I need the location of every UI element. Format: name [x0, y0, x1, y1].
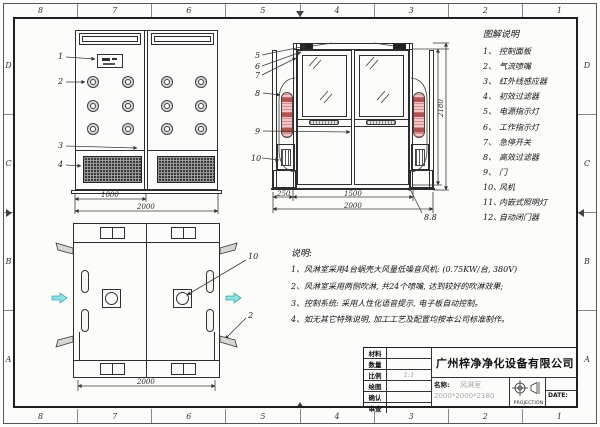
note-item: 4、如无其它特殊说明, 加工工艺及配置均按本公司标准制作。	[291, 314, 517, 331]
dim-label: 2000	[137, 378, 155, 386]
zone-cell: 7	[78, 4, 152, 17]
zone-cell: B	[4, 213, 13, 311]
legend-item-num: 10、	[483, 182, 499, 193]
legend-panel: 图解说明 1、控制面板 2、气流喷嘴 3、红外线感应器 4、初效过滤器 5、电源…	[483, 27, 575, 225]
leader-label: 4	[58, 160, 63, 169]
nozzle	[195, 123, 207, 135]
nozzle	[87, 76, 99, 88]
legend-item: 11、内嵌式照明灯	[483, 195, 575, 210]
notes-panel: 说明: 1、风淋室采用4台蜗壳大风量低噪音风机: (0.75KW/台, 380V…	[291, 246, 517, 331]
legend-item: 3、红外线感应器	[483, 74, 575, 89]
top-strip-inner	[154, 36, 211, 42]
hepa-filter-strip	[281, 92, 293, 138]
zone-cell: D	[4, 17, 13, 115]
title-row-label: 审查	[364, 403, 387, 413]
legend-item-label: 门	[499, 167, 507, 178]
zone-cell: 2	[449, 4, 523, 17]
legend-item: 12、自动闭门器	[483, 210, 575, 225]
zone-strip-bottom: 8 7 6 5 4 3 2 1	[4, 409, 596, 423]
product-name: 风淋室	[460, 380, 481, 390]
panel-divider	[147, 30, 148, 190]
note-item-num: 2、	[291, 281, 304, 292]
nozzle-plan	[81, 270, 89, 293]
title-block-table: 材料 数量 比例1:1 绘图 确认 审查	[364, 348, 431, 407]
nozzle-plan	[81, 309, 89, 332]
notes-title: 说明:	[291, 246, 517, 259]
note-item: 2、风淋室采用两侧吹淋, 共24个喷嘴, 达到较好的吹淋效果;	[291, 281, 517, 298]
control-panel	[97, 54, 123, 68]
legend-item-label: 红外线感应器	[499, 76, 547, 87]
zone-cell: 8	[4, 4, 78, 17]
title-row-label: 确认	[364, 392, 387, 402]
fan-louver	[415, 149, 425, 166]
zone-cell: C	[578, 115, 596, 213]
door-handle	[366, 120, 396, 125]
leader-label: 1	[58, 52, 63, 61]
leader-label: 10	[248, 252, 258, 261]
note-item-num: 4、	[291, 314, 304, 325]
cabinet-base	[71, 190, 222, 194]
fan-louver	[281, 149, 291, 166]
legend-item: 7、急停开关	[483, 135, 575, 150]
legend-item-label: 电源指示灯	[499, 106, 539, 117]
legend-item-label: 自动闭门器	[499, 212, 539, 223]
legend-item-num: 12、	[483, 212, 499, 223]
zone-cell: 3	[375, 4, 449, 17]
legend-item-num: 7、	[483, 137, 499, 148]
dim-label: 1500	[344, 190, 362, 198]
glass-pane	[302, 55, 347, 117]
title-row-label: 材料	[364, 348, 387, 358]
note-item-text: 控制系统: 采用人性化语音提示, 电子板自动控制。	[304, 298, 482, 309]
legend-item-num: 11、	[483, 197, 499, 208]
date-label: DATE:	[548, 392, 568, 399]
title-block-row: 比例1:1	[364, 370, 431, 381]
legend-item-num: 3、	[483, 76, 499, 87]
nozzle-plan	[206, 270, 214, 293]
base-plinth	[410, 170, 433, 188]
nozzle	[87, 123, 99, 135]
title-row-label: 数量	[364, 359, 387, 369]
air-grille	[157, 156, 215, 183]
legend-item-num: 9、	[483, 167, 499, 178]
title-block-bottom: 名称: 风淋室 2000*2000*2180 PROJECTION	[431, 378, 578, 407]
panel-divider	[144, 30, 145, 190]
legend-item-label: 气流喷嘴	[499, 61, 531, 72]
side-post	[429, 50, 434, 190]
projection-cell: PROJECTION	[510, 378, 546, 407]
title-row-value	[387, 348, 431, 358]
leader-label: 2	[58, 77, 63, 86]
legend-item: 8、高效过滤器	[483, 150, 575, 165]
leader-label: 8	[255, 89, 260, 98]
top-strip-inner	[82, 36, 138, 42]
door-closer-plan	[183, 227, 196, 239]
title-row-value	[387, 403, 431, 413]
zone-cell: 6	[152, 4, 226, 17]
name-label: 名称:	[434, 379, 450, 389]
note-item-text: 风淋室采用4台蜗壳大风量低噪音风机: (0.75KW/台, 380V)	[304, 264, 517, 275]
plan-wall-line	[79, 332, 80, 360]
legend-item-num: 2、	[483, 61, 499, 72]
zone-cell: 5	[226, 409, 300, 423]
zone-cell: 1	[523, 409, 596, 423]
dim-label: 250	[277, 190, 290, 198]
legend-item-num: 1、	[483, 46, 499, 57]
leader-label: 9	[255, 127, 260, 136]
legend-item-label: 风机	[499, 182, 515, 193]
nozzle	[122, 76, 134, 88]
nozzle	[195, 76, 207, 88]
leader-label: 7	[255, 71, 260, 80]
legend-item-label: 初效过滤器	[499, 91, 539, 102]
dim-label: 2000	[137, 203, 155, 211]
nozzle	[122, 123, 134, 135]
fan-circle	[105, 292, 118, 305]
scale-value: 1:1	[387, 370, 431, 380]
title-row-value	[387, 359, 431, 369]
door-closer	[393, 44, 406, 49]
title-block-row: 绘图	[364, 381, 431, 392]
zone-cell: A	[578, 311, 596, 408]
legend-item-label: 内嵌式照明灯	[499, 197, 547, 208]
zone-cell: D	[578, 17, 596, 115]
nozzle	[87, 100, 99, 112]
leader-label: 2	[248, 311, 253, 320]
leader-label: 10	[251, 154, 261, 163]
glass-pane	[359, 55, 404, 117]
dim-label: 2180	[437, 99, 445, 117]
leader-label: 3	[58, 141, 63, 150]
legend-item-num: 5、	[483, 106, 499, 117]
door-handle	[309, 120, 339, 125]
zone-cell: 2	[449, 409, 523, 423]
dim-label: 1000	[101, 191, 119, 199]
fan-circle	[176, 292, 189, 305]
zone-cell: C	[4, 115, 13, 213]
projection-label: PROJECTION	[511, 401, 546, 406]
zone-cell: 1	[523, 4, 596, 17]
panel-rail	[75, 150, 144, 151]
air-grille	[83, 156, 142, 183]
zone-cell: B	[578, 213, 596, 311]
center-mark-icon	[578, 209, 584, 217]
zone-cell: 4	[301, 4, 375, 17]
title-row-label: 比例	[364, 370, 387, 380]
plan-center-line	[146, 223, 147, 378]
dim-label: 2000	[344, 202, 362, 210]
product-size: 2000*2000*2180	[434, 392, 494, 400]
nozzle	[161, 123, 173, 135]
legend-title: 图解说明	[483, 27, 575, 40]
zone-cell: 7	[78, 409, 152, 423]
panel-rail	[147, 150, 218, 151]
legend-item: 6、工作指示灯	[483, 119, 575, 134]
base-plinth	[273, 170, 296, 188]
plan-wall-line	[214, 332, 215, 360]
title-block-row: 数量	[364, 359, 431, 370]
door-rail	[355, 126, 408, 127]
legend-item-label: 控制面板	[499, 46, 531, 57]
door-closer-plan	[112, 227, 125, 239]
leader-label: 5	[255, 51, 260, 60]
legend-item-num: 4、	[483, 91, 499, 102]
legend-item: 10、风机	[483, 180, 575, 195]
legend-item: 9、门	[483, 165, 575, 180]
legend-item-num: 6、	[483, 122, 499, 133]
zone-cell: A	[4, 311, 13, 408]
leader-label: 8.8	[424, 213, 437, 222]
note-item-text: 如无其它特殊说明, 加工工艺及配置均按本公司标准制作。	[304, 314, 509, 325]
center-mark-icon	[6, 209, 12, 217]
legend-item-num: 8、	[483, 152, 499, 163]
door-closer-plan	[183, 363, 196, 375]
product-name-cell: 名称: 风淋室 2000*2000*2180	[432, 378, 510, 407]
title-row-value	[387, 381, 431, 391]
legend-item: 2、气流喷嘴	[483, 59, 575, 74]
door-closer-plan	[112, 363, 125, 375]
note-item: 1、风淋室采用4台蜗壳大风量低噪音风机: (0.75KW/台, 380V)	[291, 264, 517, 281]
nozzle-plan	[206, 309, 214, 332]
title-block: 材料 数量 比例1:1 绘图 确认 审查 广州梓净净化设备有限公司 名称: 风淋…	[363, 347, 578, 408]
title-row-label: 绘图	[364, 381, 387, 391]
leader-label: 6	[255, 62, 260, 71]
legend-item-label: 高效过滤器	[499, 152, 539, 163]
note-item-text: 风淋室采用两侧吹淋, 共24个喷嘴, 达到较好的吹淋效果;	[304, 281, 503, 292]
date-divider	[546, 390, 578, 391]
zone-cell: 8	[4, 409, 78, 423]
projection-symbol-icon	[510, 378, 544, 398]
door-closer	[300, 44, 313, 49]
title-block-row: 确认	[364, 392, 431, 403]
title-block-row: 审查	[364, 403, 431, 413]
legend-item-label: 急停开关	[499, 137, 531, 148]
nozzle	[195, 100, 207, 112]
drawing-sheet: 8 7 6 5 4 3 2 1 8 7 6 5 4 3 2 1 D C B A …	[0, 0, 600, 427]
title-block-row: 材料	[364, 348, 431, 359]
hepa-filter-strip	[413, 92, 425, 138]
legend-item: 5、电源指示灯	[483, 104, 575, 119]
zone-cell: 5	[226, 4, 300, 17]
nozzle	[161, 76, 173, 88]
company-name: 广州梓净净化设备有限公司	[431, 348, 578, 378]
note-item-num: 3、	[291, 298, 304, 309]
zone-cell: 6	[152, 409, 226, 423]
note-item-num: 1、	[291, 264, 304, 275]
note-item: 3、控制系统: 采用人性化语音提示, 电子板自动控制。	[291, 298, 517, 315]
door-rail	[298, 126, 351, 127]
legend-item: 4、初效过滤器	[483, 89, 575, 104]
date-cell: DATE:	[546, 378, 578, 407]
title-row-value	[387, 392, 431, 402]
legend-item-label: 工作指示灯	[499, 122, 539, 133]
nozzle	[161, 100, 173, 112]
nozzle	[122, 100, 134, 112]
legend-item: 1、控制面板	[483, 44, 575, 59]
